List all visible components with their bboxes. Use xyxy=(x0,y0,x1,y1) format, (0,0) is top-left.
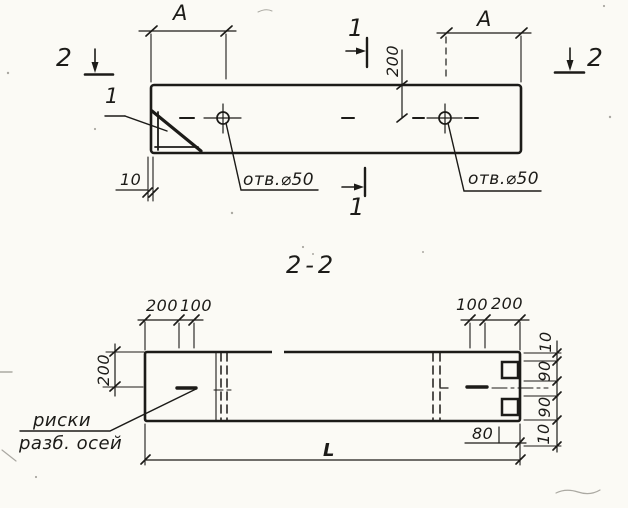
chain-10-top-label: 10 xyxy=(538,331,554,352)
blueprint-canvas: А А 2 2 1 1 200 1 отв.⌀50 отв.⌀50 10 2-2… xyxy=(0,0,628,508)
dims-top-left-lines xyxy=(138,315,203,350)
cut1-top-marker xyxy=(346,38,367,67)
hole-note-left-label: отв.⌀50 xyxy=(243,172,314,189)
dim-a-right-label: А xyxy=(477,9,492,30)
dim-100-topleft-label: 100 xyxy=(180,298,212,314)
dim-10-label: 10 xyxy=(120,172,141,188)
chain-10-bottom-label: 10 xyxy=(536,423,552,444)
hole-left xyxy=(180,104,241,133)
cut2-left-marker xyxy=(85,49,113,75)
dim-a-left-label: А xyxy=(173,3,188,24)
dim-200-topleft-label: 200 xyxy=(146,298,178,314)
dim-100-topright-label: 100 xyxy=(456,297,488,313)
chain-90-upper-label: 90 xyxy=(537,360,553,381)
dim-80-label: 80 xyxy=(472,426,493,442)
chain-90-lower-label: 90 xyxy=(537,396,553,417)
dim-200-label: 200 xyxy=(385,45,401,77)
cut1-bottom-label: 1 xyxy=(349,195,365,219)
beam-section-outline xyxy=(145,352,520,421)
dim-200-topright-label: 200 xyxy=(491,296,523,312)
cut1-bottom-marker xyxy=(342,168,365,196)
dim-height-200-label: 200 xyxy=(96,354,112,386)
axes-note-line2: разб. осей xyxy=(19,435,122,453)
dim-a-right-lines xyxy=(437,28,531,82)
dim-length-label: L xyxy=(323,442,335,460)
notch-bottom xyxy=(502,399,518,415)
axis-line xyxy=(103,387,548,390)
cut1-top-label: 1 xyxy=(348,16,364,40)
cut2-left-label: 2 xyxy=(56,45,72,70)
dim-a-left-lines xyxy=(139,26,236,82)
cut2-right-marker xyxy=(555,48,584,73)
notch-top xyxy=(502,362,518,378)
break-lines xyxy=(216,353,440,420)
axes-note-line1: риски xyxy=(33,412,91,430)
dims-top-right-lines xyxy=(461,315,529,350)
section-title: 2-2 xyxy=(286,253,337,277)
hole-note-right-label: отв.⌀50 xyxy=(468,171,539,188)
hole-right xyxy=(342,104,478,133)
cut2-right-label: 2 xyxy=(587,45,603,70)
detail-mark-label: 1 xyxy=(105,86,119,107)
